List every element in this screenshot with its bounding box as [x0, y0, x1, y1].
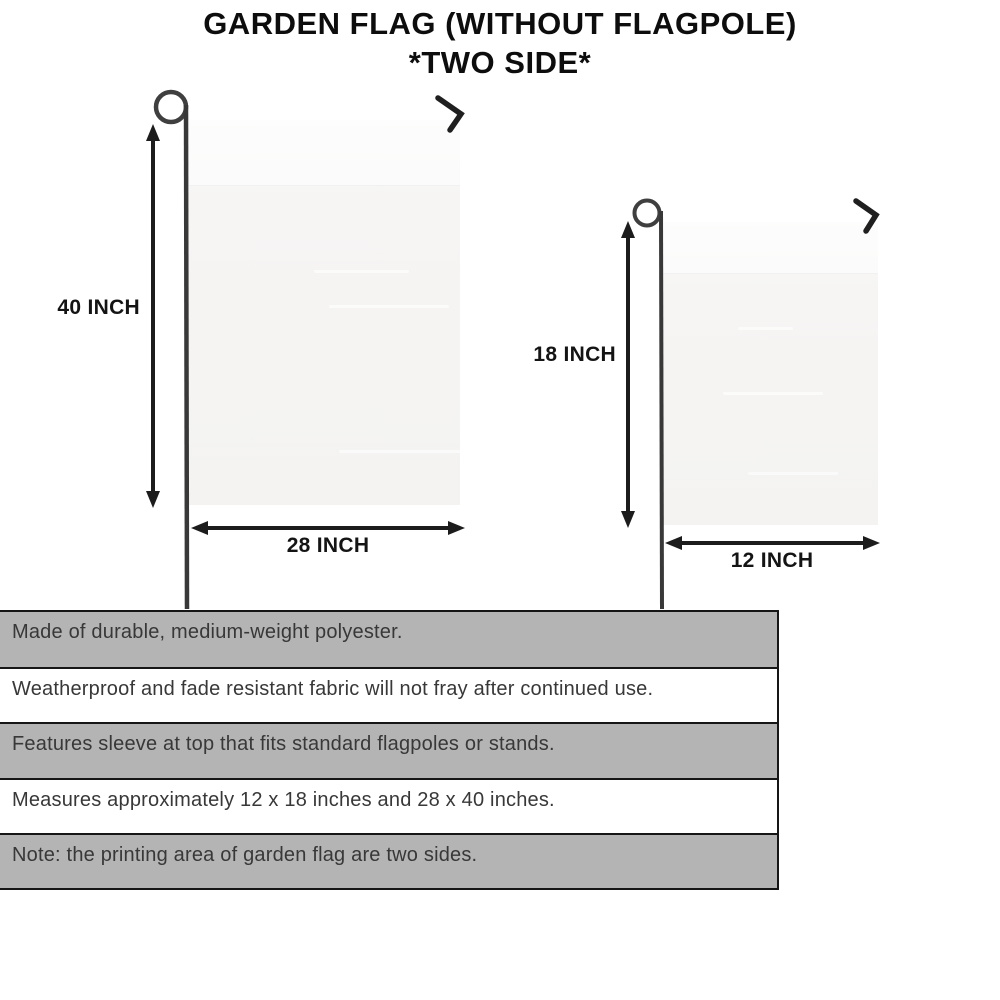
- title-block: GARDEN FLAG (WITHOUT FLAGPOLE) *TWO SIDE…: [0, 6, 1000, 81]
- height-label-large: 40 INCH: [18, 296, 140, 320]
- fabric-fold: [738, 327, 793, 330]
- flag-small: [663, 222, 878, 525]
- feature-row: Features sleeve at top that fits standar…: [0, 722, 777, 777]
- flagpole-large-icon: [156, 92, 187, 609]
- garden-flag-size-chart: GARDEN FLAG (WITHOUT FLAGPOLE) *TWO SIDE…: [0, 0, 1000, 1000]
- width-label-large: 28 INCH: [221, 534, 435, 558]
- page-title: GARDEN FLAG (WITHOUT FLAGPOLE): [0, 6, 1000, 42]
- fabric-fold: [339, 450, 469, 453]
- height-arrow-small-icon: [621, 221, 635, 528]
- feature-text: Weatherproof and fade resistant fabric w…: [12, 678, 653, 700]
- height-arrow-large-icon: [146, 124, 160, 508]
- height-label-small: 18 INCH: [492, 343, 616, 367]
- width-label-small: 12 INCH: [666, 549, 878, 573]
- width-arrow-small-icon: [665, 536, 880, 550]
- flag-small-sleeve: [663, 222, 878, 274]
- flagpole-small-icon: [635, 201, 663, 610]
- feature-text: Features sleeve at top that fits standar…: [12, 733, 555, 755]
- feature-text: Made of durable, medium-weight polyester…: [12, 621, 403, 643]
- feature-list: Made of durable, medium-weight polyester…: [0, 610, 779, 890]
- fabric-fold: [329, 305, 449, 308]
- feature-row: Measures approximately 12 x 18 inches an…: [0, 778, 777, 833]
- fabric-fold: [314, 270, 409, 273]
- feature-row: Weatherproof and fade resistant fabric w…: [0, 667, 777, 722]
- feature-text: Measures approximately 12 x 18 inches an…: [12, 789, 555, 811]
- flag-large: [189, 120, 460, 505]
- feature-text: Note: the printing area of garden flag a…: [12, 844, 477, 866]
- page-subtitle: *TWO SIDE*: [0, 45, 1000, 81]
- width-arrow-large-icon: [191, 521, 465, 535]
- feature-row: Note: the printing area of garden flag a…: [0, 833, 777, 888]
- feature-row: Made of durable, medium-weight polyester…: [0, 612, 777, 667]
- fabric-fold: [748, 472, 838, 475]
- fabric-fold: [723, 392, 823, 395]
- flag-large-sleeve: [189, 120, 460, 186]
